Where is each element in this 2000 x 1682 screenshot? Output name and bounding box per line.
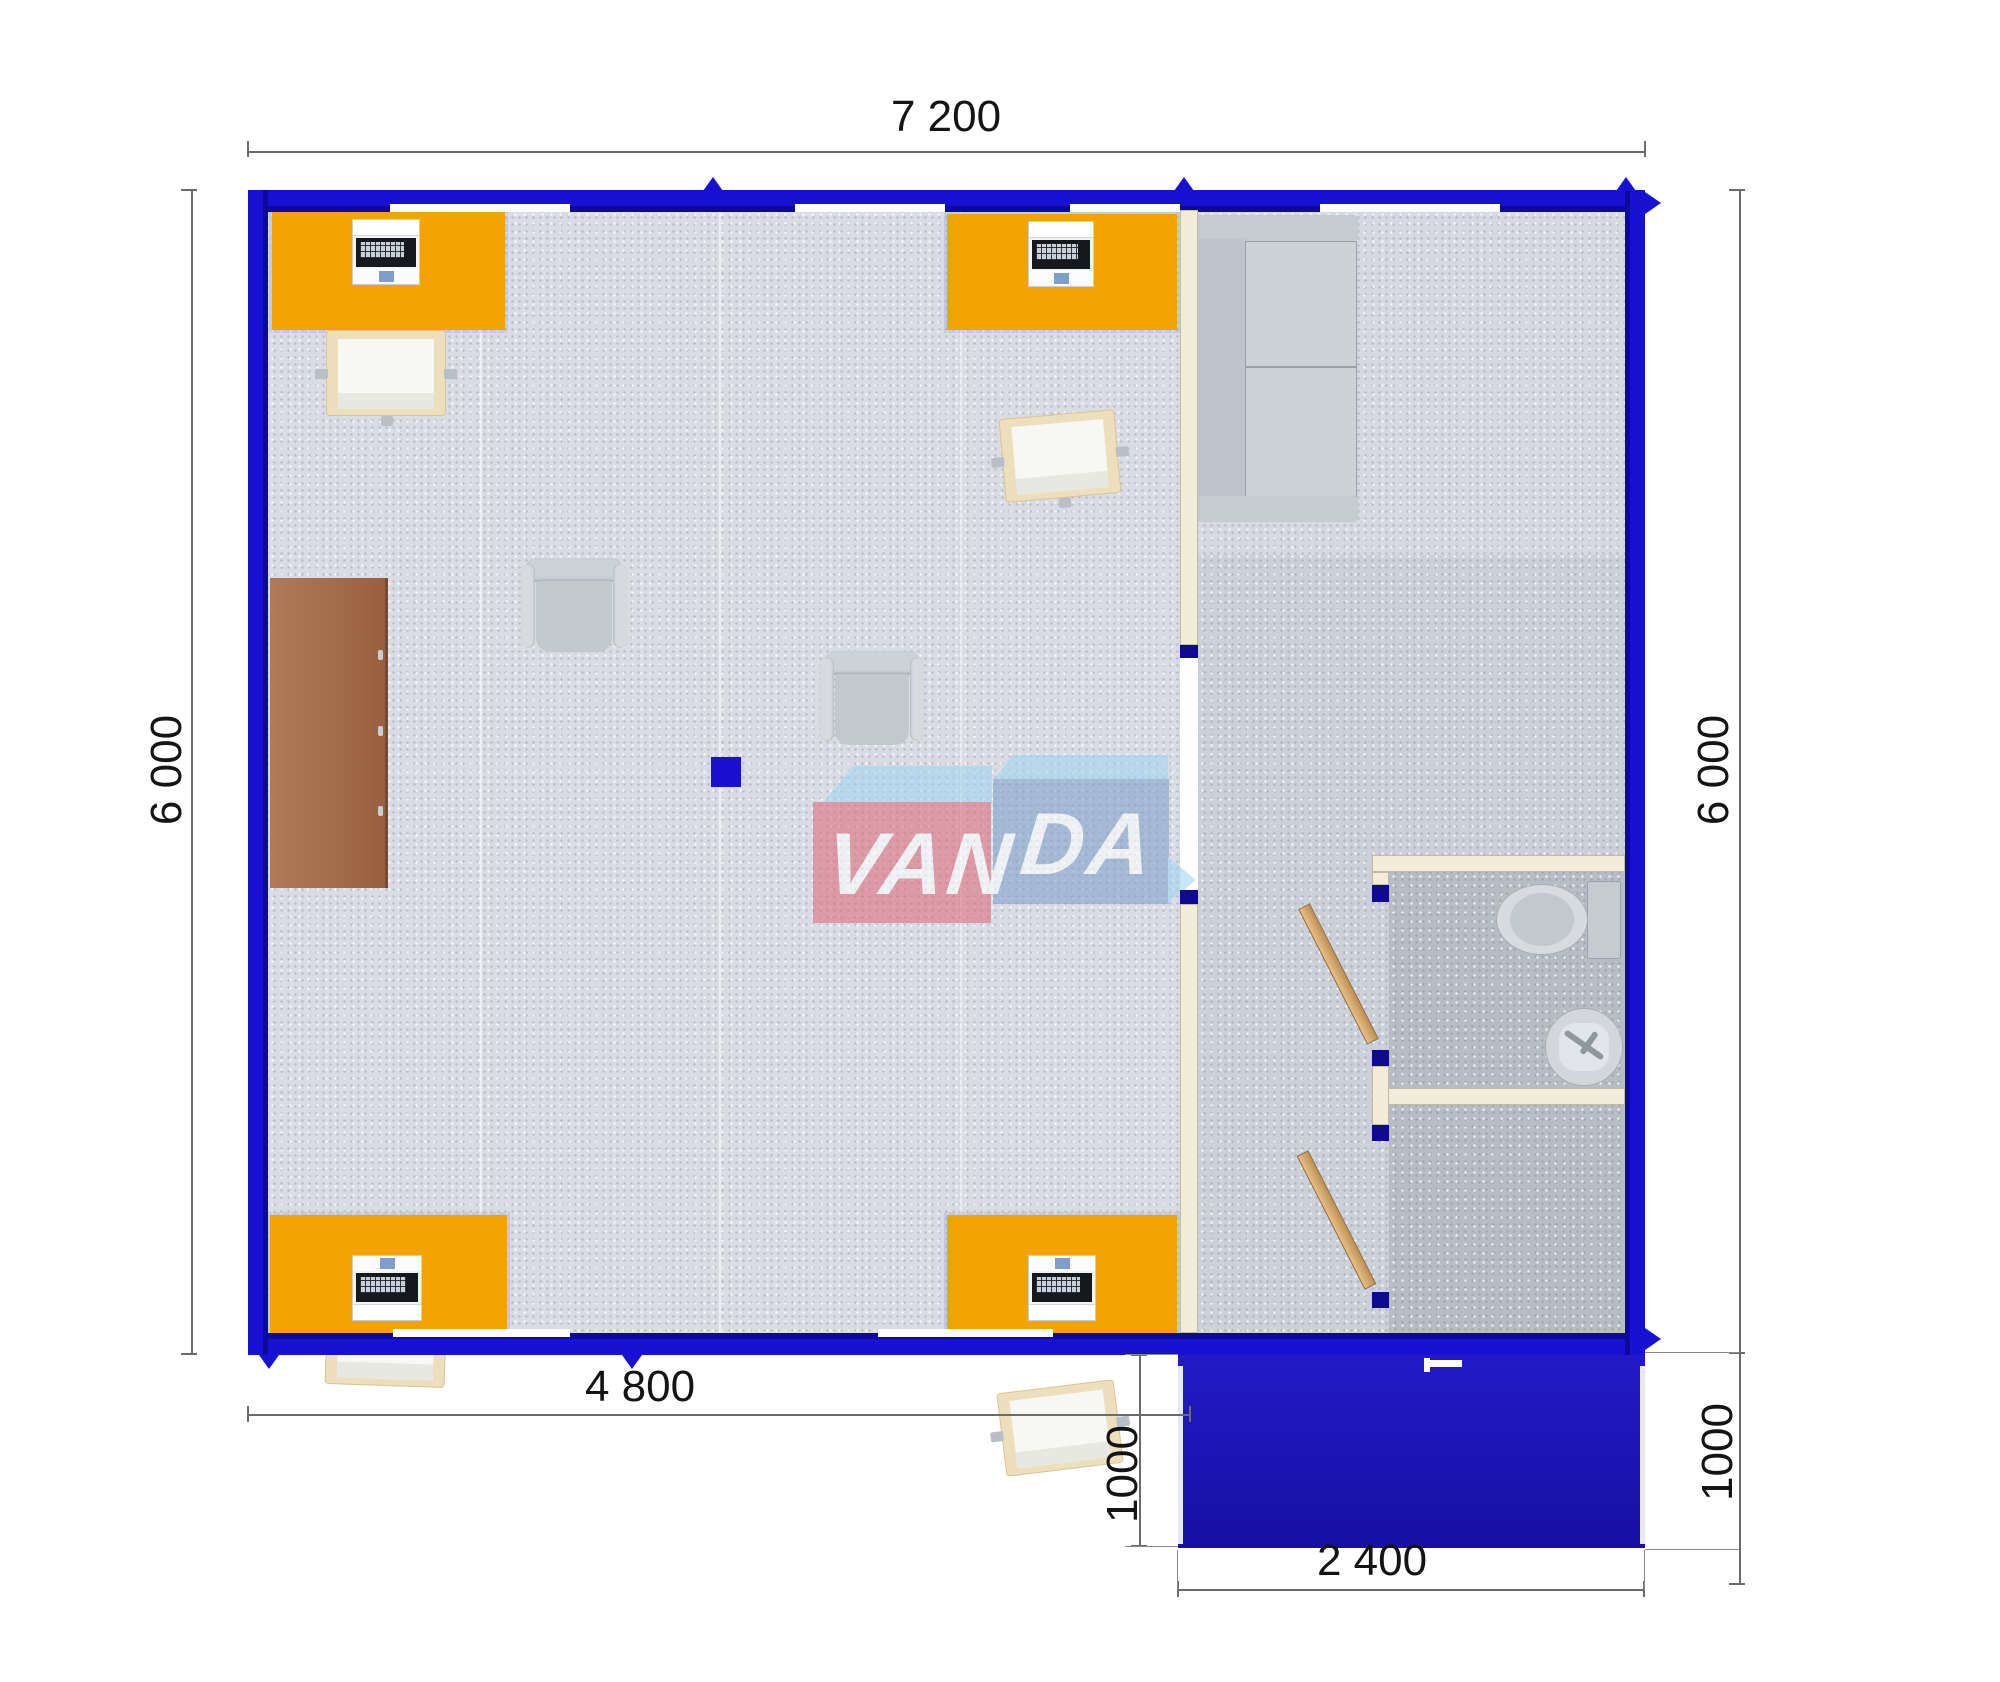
partition-wall-upper xyxy=(1180,210,1198,645)
logo-text-right: DA xyxy=(1013,793,1164,895)
dimension-label-height-right: 6 000 xyxy=(1689,660,1739,880)
computer-base xyxy=(353,269,419,284)
dimension-label-height-left: 6 000 xyxy=(142,660,192,880)
computer-top-left xyxy=(352,219,420,285)
mouse-pad xyxy=(380,1258,395,1269)
porch-edge xyxy=(1178,1366,1183,1544)
module-tick xyxy=(1645,1328,1661,1350)
dimension-tick xyxy=(1644,141,1646,157)
logo-text-left: VAN xyxy=(821,813,992,915)
dimension-tick xyxy=(181,189,197,191)
module-tick xyxy=(259,1355,279,1369)
chair-caster xyxy=(1059,497,1072,508)
partition-wall-lower xyxy=(1180,904,1198,1333)
monitor xyxy=(1029,222,1093,238)
toilet-seat xyxy=(1510,893,1574,946)
cabinet-handle xyxy=(378,726,383,736)
sofa-armrest-bottom xyxy=(1193,496,1358,522)
bathroom-wall-divider xyxy=(1372,1088,1625,1105)
module-tick xyxy=(1174,177,1194,191)
window-top-2 xyxy=(795,204,945,212)
armchair-arm xyxy=(820,657,834,742)
dimension-tick xyxy=(247,141,249,157)
computer-base xyxy=(353,1256,421,1271)
armchair-top-2 xyxy=(820,651,924,745)
window-top-4 xyxy=(1320,204,1500,212)
door-jamb xyxy=(1180,890,1198,904)
bathroom-wall-left xyxy=(1372,1066,1389,1125)
module-tick xyxy=(1616,177,1636,191)
armchair-seat xyxy=(835,674,910,745)
chair-seat xyxy=(1011,419,1109,495)
sofa-armrest-top xyxy=(1193,215,1358,241)
logo-extrusion-right xyxy=(995,755,1168,779)
dimension-line xyxy=(248,151,1645,153)
armchair-top-1 xyxy=(521,558,627,652)
entry-door-threshold xyxy=(1424,1358,1430,1372)
window-bottom-1 xyxy=(393,1329,570,1337)
dimension-line xyxy=(1178,1589,1645,1591)
dimension-tick xyxy=(1729,1583,1745,1585)
dimension-label-porch-left: 1000 xyxy=(1098,1364,1148,1584)
mouse-pad xyxy=(1054,273,1069,284)
sofa-cushion xyxy=(1245,367,1357,497)
dimension-label-porch-width: 2 400 xyxy=(1272,1536,1472,1586)
dimension-tick xyxy=(1189,1406,1191,1422)
dimension-tick xyxy=(1729,189,1745,191)
chair-seat xyxy=(338,339,434,409)
door-jamb xyxy=(1372,1292,1389,1308)
extension-line xyxy=(1177,1550,1178,1590)
door-jamb xyxy=(1180,645,1198,658)
module-tick xyxy=(1645,192,1661,214)
cabinet-handle xyxy=(378,806,383,816)
toilet-tank xyxy=(1587,881,1621,959)
floor-seam xyxy=(480,210,482,1333)
armchair-arm xyxy=(613,564,627,649)
extension-line xyxy=(1644,1550,1645,1590)
armchair-back xyxy=(825,651,919,675)
computer-top-right xyxy=(1028,221,1094,287)
computer-bottom-right xyxy=(1028,1255,1096,1321)
cabinet-handle xyxy=(378,650,383,660)
storage-room-floor xyxy=(1389,1105,1625,1333)
dimension-tick xyxy=(247,1406,249,1422)
keyboard xyxy=(1032,1273,1092,1302)
armchair-arm xyxy=(910,657,924,742)
exterior-wall-right xyxy=(1625,190,1645,1355)
entry-door-threshold xyxy=(1428,1360,1462,1367)
keyboard xyxy=(356,238,416,267)
entrance-porch xyxy=(1178,1355,1645,1548)
window-top-3 xyxy=(1070,204,1180,212)
monitor xyxy=(353,1304,421,1320)
dimension-tick xyxy=(181,1353,197,1355)
door-jamb xyxy=(1372,885,1389,902)
office-chair-top-left xyxy=(326,330,446,416)
monitor xyxy=(353,220,419,236)
brand-watermark: VAN DA xyxy=(790,745,1210,940)
dimension-label-porch-right: 1000 xyxy=(1693,1342,1743,1562)
exterior-wall-left xyxy=(248,190,268,1355)
door-jamb xyxy=(1372,1050,1389,1066)
bathroom-wall-top xyxy=(1372,855,1625,872)
dimension-label-overall-width: 7 200 xyxy=(846,92,1046,142)
mouse-pad xyxy=(379,271,394,282)
bathroom-wall-left xyxy=(1372,872,1389,885)
porch-edge xyxy=(1640,1366,1645,1544)
armchair-back xyxy=(526,558,621,582)
window-bottom-2 xyxy=(878,1329,1053,1337)
chair-caster xyxy=(381,416,393,426)
computer-base xyxy=(1029,271,1093,286)
extension-line xyxy=(1125,1354,1178,1355)
keyboard xyxy=(1032,240,1090,269)
storage-cabinet xyxy=(270,578,388,888)
computer-bottom-left xyxy=(352,1255,422,1321)
chair-seat xyxy=(1009,1390,1111,1469)
logo-extrusion-left xyxy=(822,766,992,804)
computer-base xyxy=(1029,1256,1095,1271)
sofa xyxy=(1193,215,1358,522)
sofa-cushion xyxy=(1245,241,1357,367)
door-jamb xyxy=(1372,1125,1389,1141)
floor-plan: VAN DA xyxy=(0,0,2000,1682)
office-chair-top-right xyxy=(999,409,1122,503)
monitor xyxy=(1029,1304,1095,1320)
module-tick xyxy=(703,177,723,191)
window-top-1 xyxy=(390,204,570,212)
mouse-pad xyxy=(1055,1258,1070,1269)
dimension-label-office-width: 4 800 xyxy=(540,1362,740,1412)
keyboard xyxy=(356,1273,418,1302)
support-column xyxy=(711,757,741,787)
dimension-line xyxy=(248,1414,1190,1416)
sofa-back xyxy=(1193,239,1245,497)
armchair-seat xyxy=(536,581,612,652)
armchair-arm xyxy=(521,564,535,649)
